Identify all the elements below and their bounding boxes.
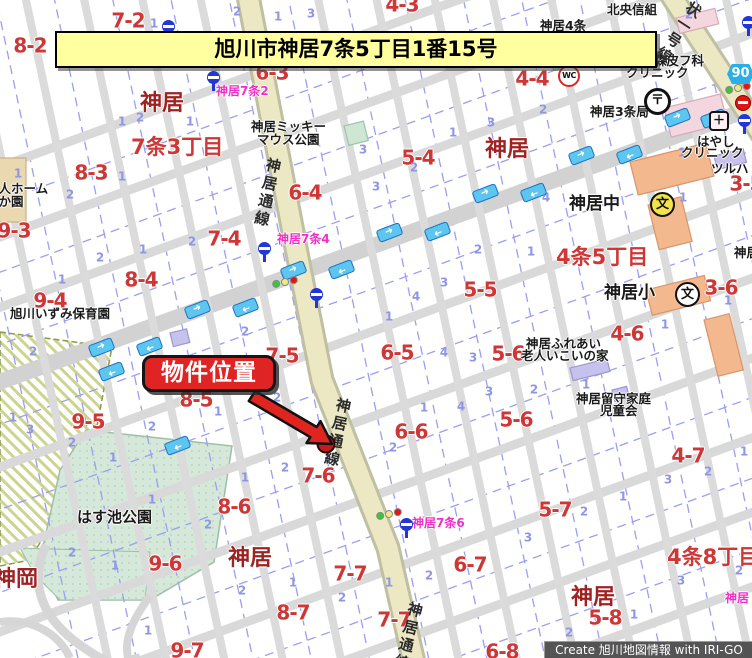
map-credit: Create 旭川地図情報 with IRI-GO — [544, 641, 752, 658]
address-banner: 旭川市神居7条5丁目1番15号 — [55, 31, 657, 68]
callout-arrow — [0, 0, 752, 658]
map-viewport[interactable]: 7-28-24-36-34-48-37-45-46-49-38-49-45-57… — [0, 0, 752, 658]
property-location-callout: 物件位置 — [142, 355, 276, 392]
